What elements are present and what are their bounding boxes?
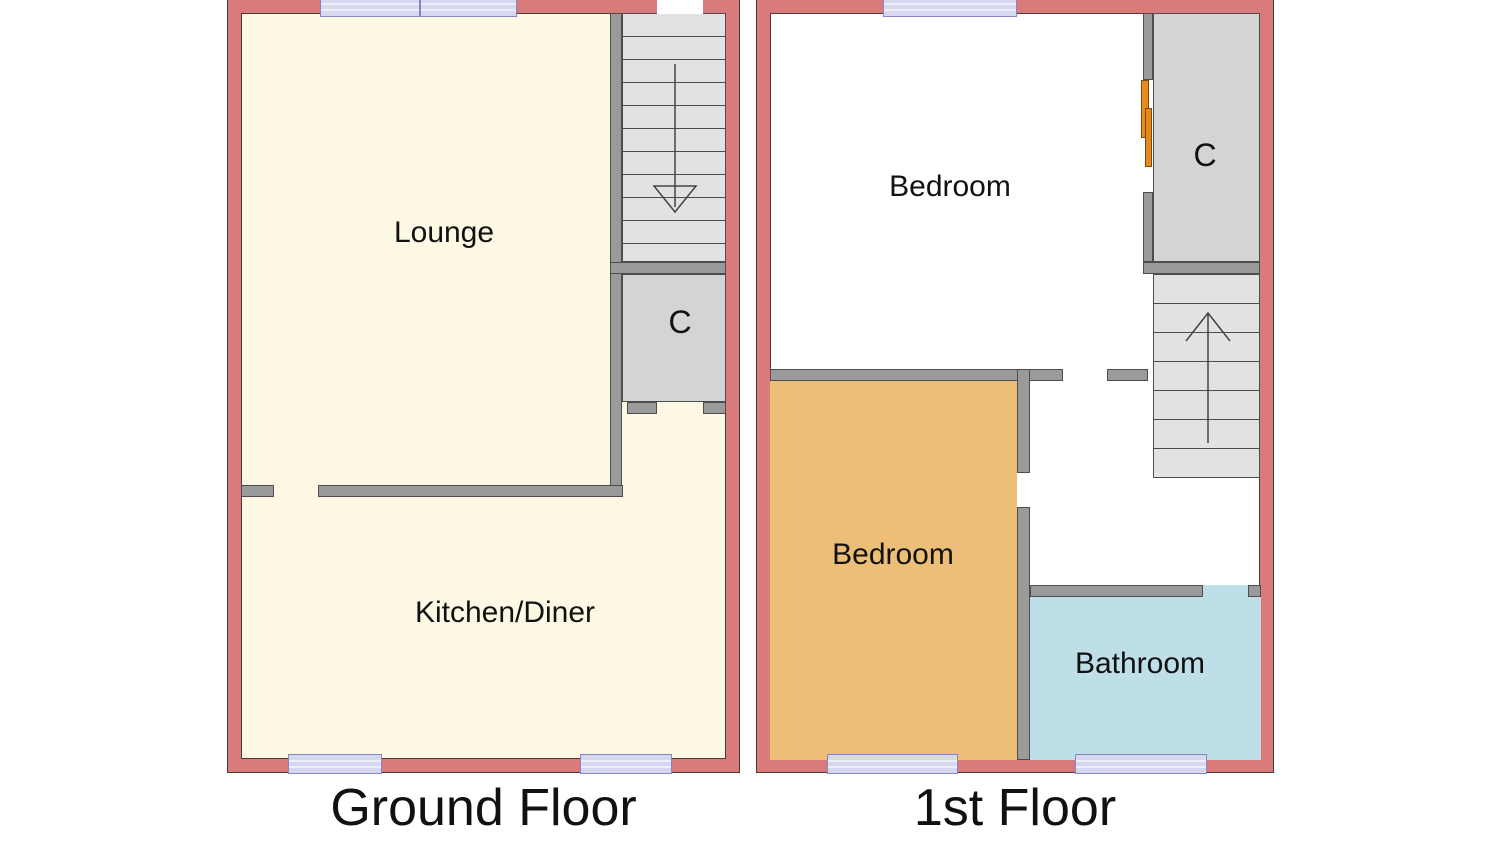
ground-floor-stairs [622, 13, 726, 262]
front-bedroom-label: Bedroom [889, 172, 1011, 202]
lounge-kitchen-wall-stub [241, 485, 274, 497]
kitchen-window-right [580, 754, 672, 774]
stairs-closet-wall [610, 262, 726, 274]
closet-wall-lower [1143, 192, 1153, 262]
lounge-label: Lounge [394, 218, 494, 248]
front-bedroom-window [883, 0, 1017, 17]
back-bedroom-wall-upper [1017, 369, 1030, 473]
lounge-window [320, 0, 517, 17]
first-floor-stairs [1153, 274, 1260, 478]
kitchen-window-left [288, 754, 382, 774]
first-floor-title: 1st Floor [757, 780, 1273, 837]
ground-closet-label: C [668, 306, 691, 338]
bathroom-label: Bathroom [1075, 649, 1205, 679]
stairs-up-arrow-icon [1154, 275, 1261, 479]
back-bedroom-label: Bedroom [832, 540, 954, 570]
bathroom-wall-stub [1248, 585, 1261, 597]
closet-stairs-wall [1143, 262, 1260, 274]
floorplan-canvas: Lounge Kitchen/Diner C [0, 0, 1500, 843]
back-bedroom-window [827, 754, 958, 774]
first-floor-plan: Bedroom C Bedroom Bathroom [757, 0, 1273, 772]
stairs-down-arrow-icon [623, 14, 727, 263]
window-pane-divider [419, 0, 421, 16]
bathroom-window [1075, 754, 1207, 774]
lounge-kitchen-wall [318, 485, 623, 497]
front-door-opening [657, 0, 703, 14]
kitchen-diner-label: Kitchen/Diner [415, 598, 595, 628]
closet-door-wall-right [703, 402, 726, 414]
ground-floor-plan: Lounge Kitchen/Diner C [228, 0, 739, 772]
closet-wall-upper [1143, 13, 1153, 80]
closet-door-wall-left [627, 402, 657, 414]
closet-door-leaf [1145, 108, 1152, 167]
landing-wall-stub [1107, 369, 1148, 381]
lounge-stairs-wall [610, 13, 622, 497]
first-closet-label: C [1193, 139, 1216, 171]
back-bedroom-wall-lower [1017, 507, 1030, 760]
bathroom-wall [1030, 585, 1203, 597]
ground-floor-title: Ground Floor [228, 780, 739, 837]
